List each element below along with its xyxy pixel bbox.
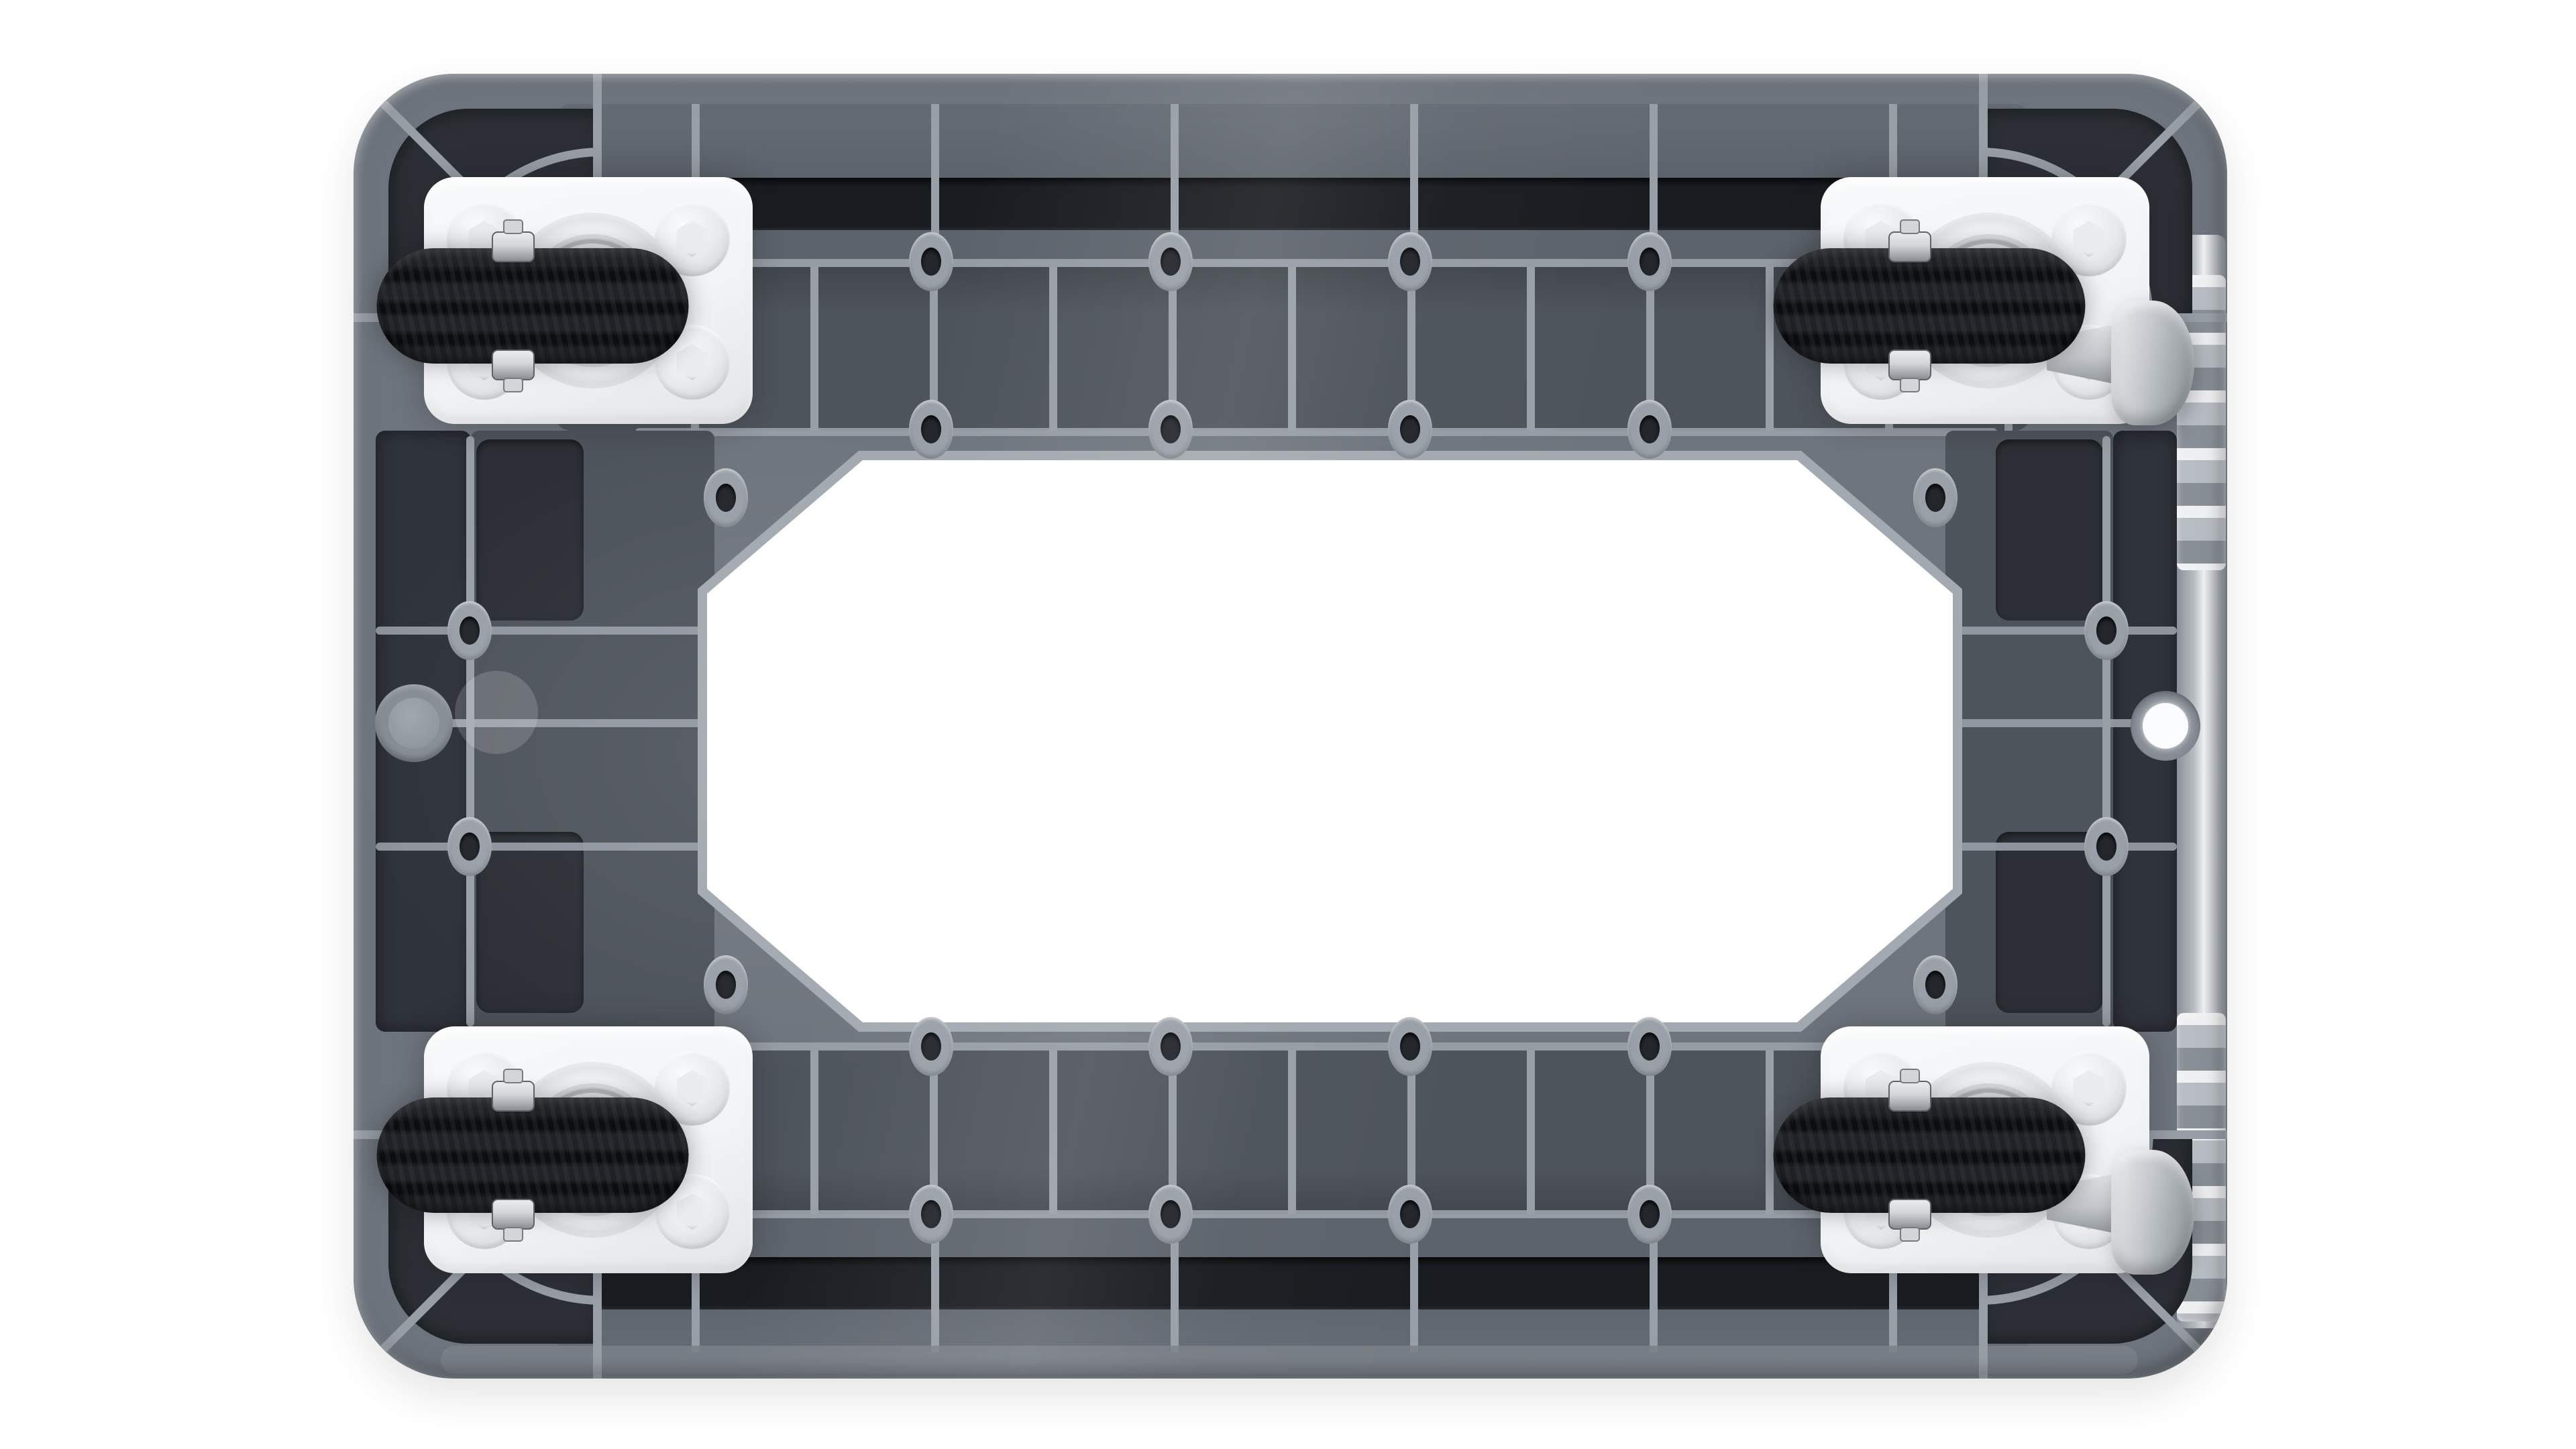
product-photo-scene	[0, 0, 2576, 1449]
axle-nut-bottom	[1888, 350, 1931, 380]
rubber-wheel	[377, 248, 689, 364]
axle-nut-top	[1888, 231, 1931, 262]
rubber-wheel	[1774, 1097, 2086, 1213]
axle-nut-bottom	[492, 350, 535, 380]
axle-nut-bottom	[492, 1199, 535, 1230]
dolly-body	[354, 74, 2227, 1379]
axle-nut-top	[492, 231, 535, 262]
axle-nut-top	[1888, 1081, 1931, 1112]
brake-pedal	[2111, 301, 2194, 425]
brake-pedal	[2111, 1150, 2194, 1275]
rubber-wheel	[377, 1097, 689, 1213]
axle-nut-bottom	[1888, 1199, 1931, 1230]
rubber-wheel	[1774, 248, 2086, 364]
axle-nut-top	[492, 1081, 535, 1112]
casters-layer	[354, 74, 2227, 1379]
